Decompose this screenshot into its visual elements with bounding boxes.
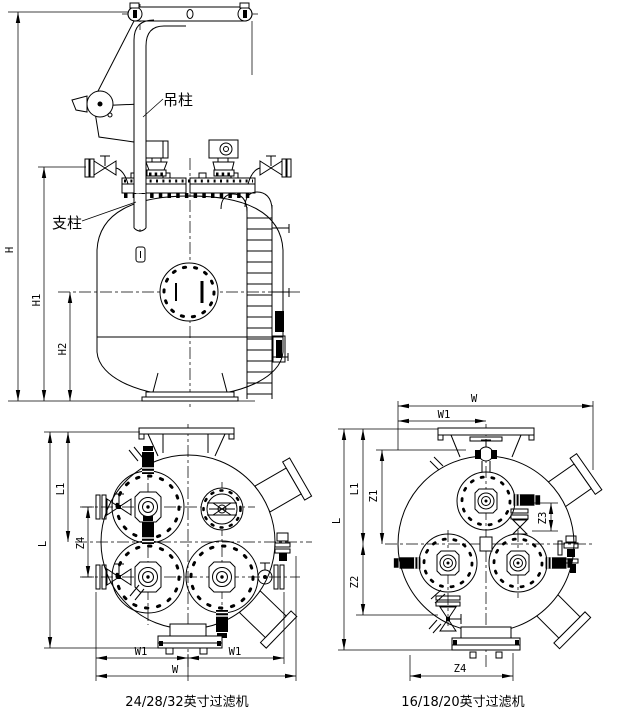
plan-large-caption: 24/28/32英寸过滤机 [125, 695, 248, 710]
manhole [160, 263, 218, 321]
drawing-page: 吊柱 支柱 H H1 H2 [0, 0, 628, 719]
valve-block [394, 557, 421, 568]
dim-h2: H2 [57, 343, 69, 356]
hoist-assembly [72, 19, 140, 142]
dim-w: W [471, 393, 478, 405]
plan-manhole [201, 488, 243, 530]
edge-valve [275, 533, 290, 561]
actuator-right [209, 140, 238, 176]
dim-l1: L1 [349, 483, 361, 496]
dim-z4: Z4 [75, 537, 87, 550]
valve-block [142, 446, 154, 474]
support-column-label: 支柱 [52, 214, 82, 232]
lifting-column-pipe [134, 20, 186, 231]
dim-l: L [331, 518, 343, 524]
dim-w: W [172, 664, 179, 676]
center-fitting [480, 537, 492, 551]
bottom-drain-large [158, 624, 222, 654]
plan-view-small: W W1 L L1 Z1 Z2 Z3 Z4 16/18/20英寸过滤机 [331, 393, 602, 710]
dim-l: L [37, 541, 49, 547]
dim-h1: H1 [31, 294, 43, 307]
dim-z4: Z4 [454, 663, 467, 675]
dim-z2: Z2 [349, 576, 361, 589]
top-nozzle-large [139, 428, 234, 456]
vent-tick [429, 620, 441, 633]
actuator-left [145, 141, 168, 176]
dim-h: H [4, 247, 16, 253]
elevation-dimensions [8, 12, 255, 401]
valve-block [514, 494, 541, 505]
lifting-column-label: 吊柱 [163, 91, 193, 109]
plan-view-large: L L1 Z4 W1 W1 W 24/28/32英寸过滤机 [37, 424, 312, 710]
dim-z3: Z3 [537, 512, 549, 525]
valve-block [216, 610, 228, 638]
dim-w1-right: W1 [229, 646, 242, 658]
dim-l1: L1 [55, 483, 67, 496]
bottom-drain-small [452, 627, 520, 658]
dim-w1: W1 [438, 409, 451, 421]
plan-small-caption: 16/18/20英寸过滤机 [401, 695, 524, 710]
technical-drawing-canvas: 吊柱 支柱 H H1 H2 [0, 0, 628, 719]
dim-w1-left: W1 [135, 646, 148, 658]
elevation-view: 吊柱 支柱 H H1 H2 [4, 3, 300, 408]
ladder [221, 192, 289, 399]
dim-z1: Z1 [368, 490, 380, 503]
vent-tick [129, 447, 143, 461]
valve-block [142, 516, 154, 544]
